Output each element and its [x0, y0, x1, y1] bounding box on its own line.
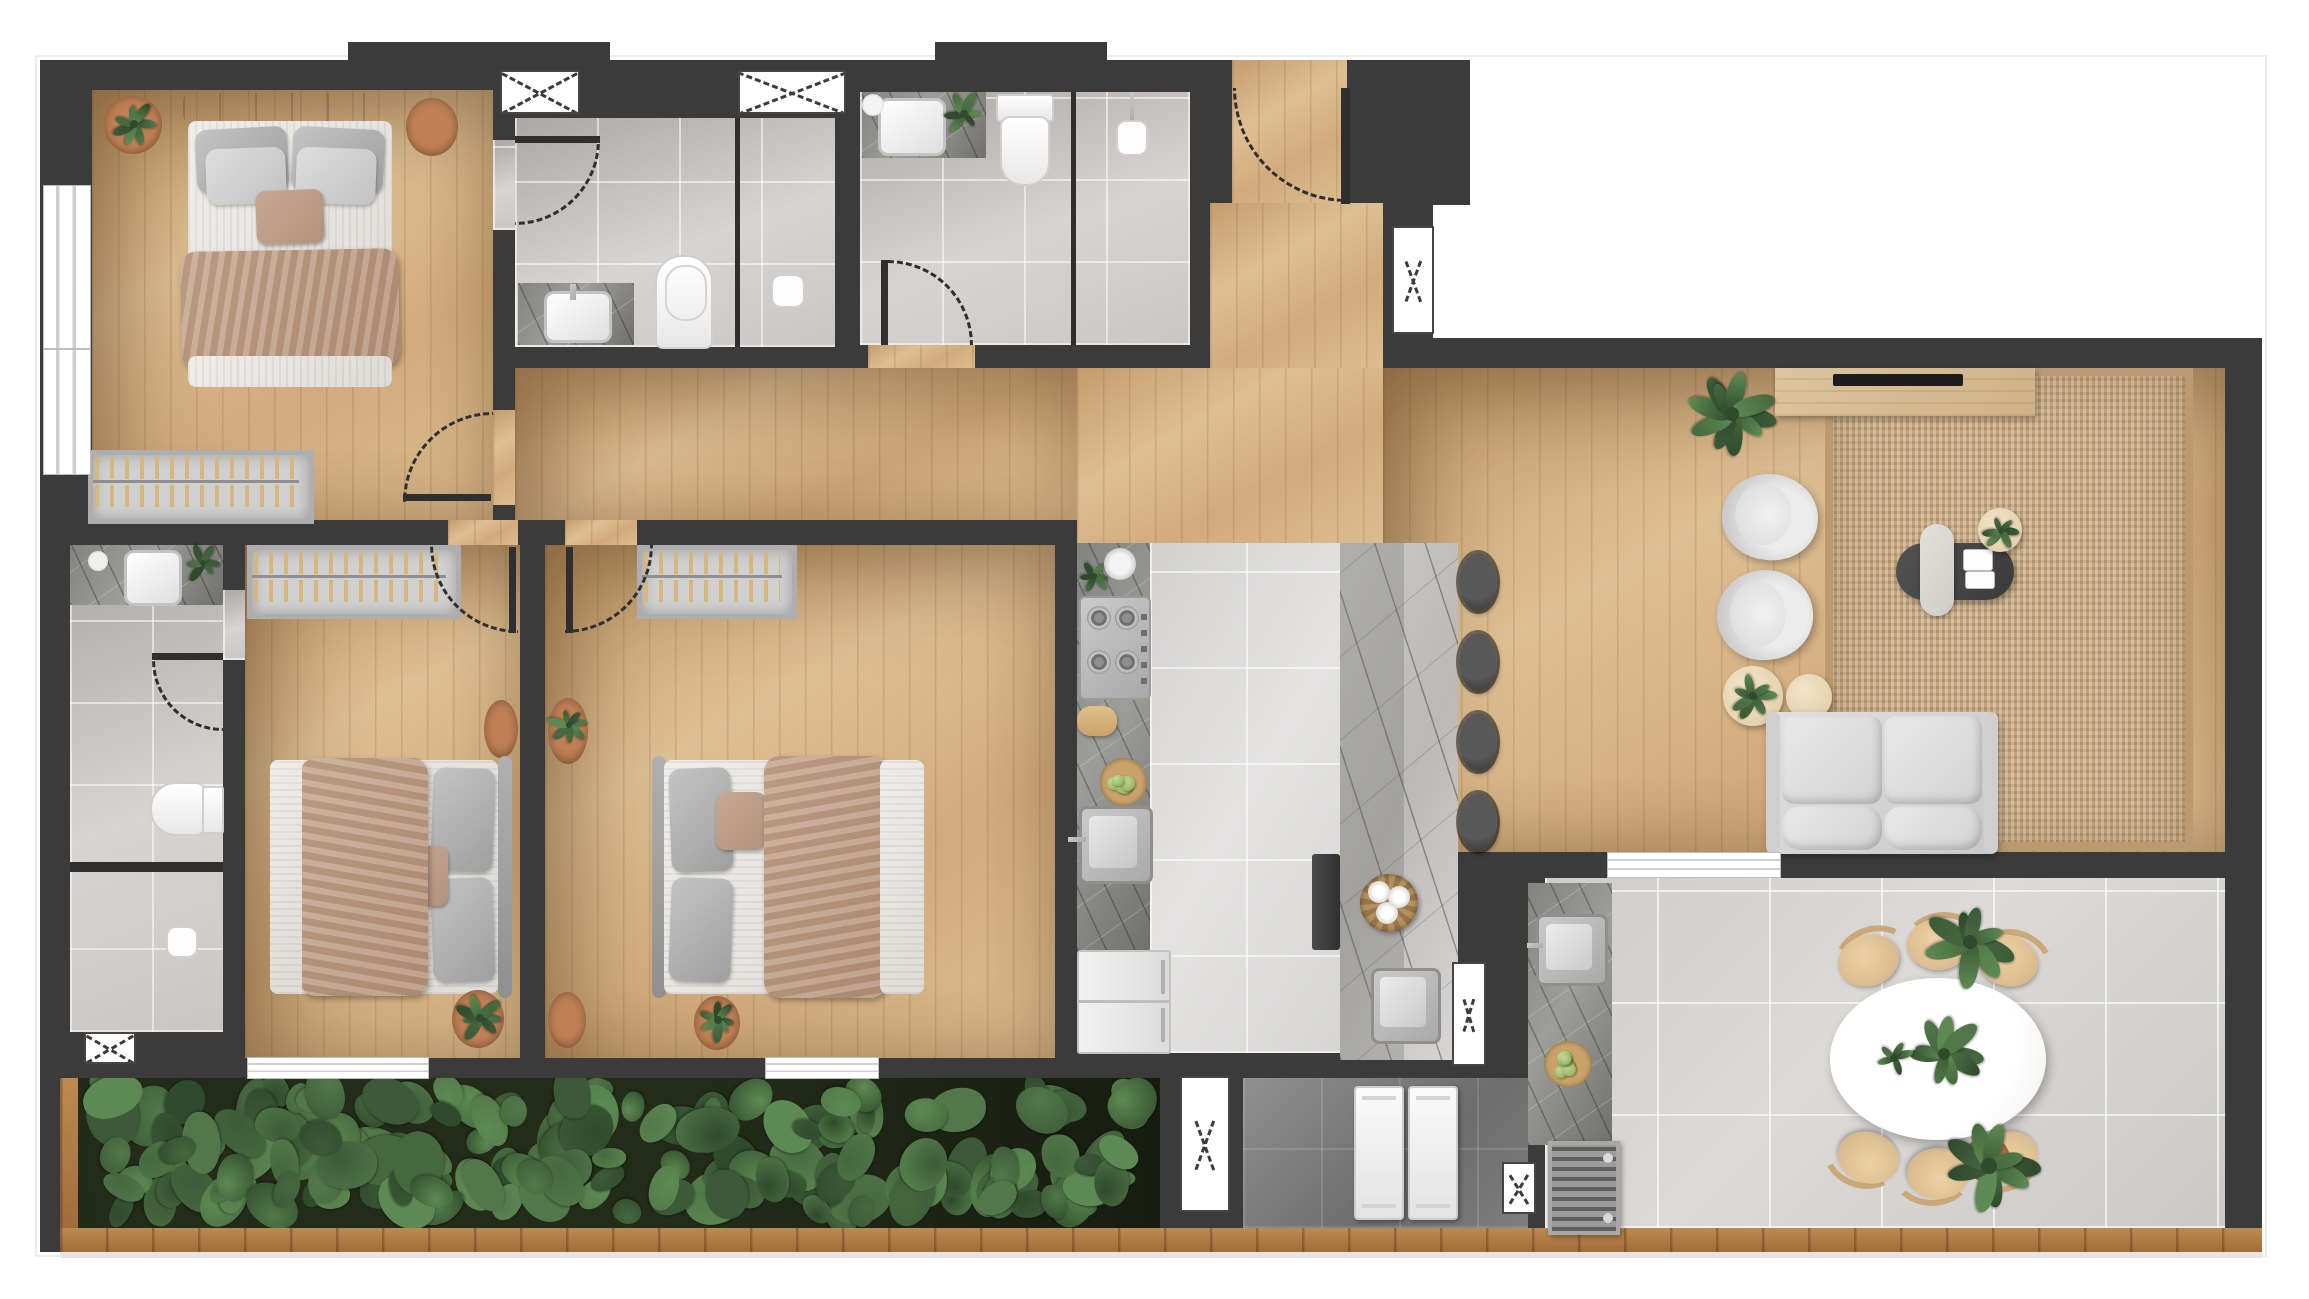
- fridge-handle: [1161, 1008, 1165, 1042]
- door-leaf-entry: [1341, 88, 1350, 204]
- kitchen-bowl: [1104, 548, 1136, 580]
- coffee-table-tray: [1920, 524, 1954, 616]
- appliance-detail: [1416, 1204, 1450, 1208]
- bbq-sink: [1536, 914, 1608, 986]
- wardrobe-rail: [252, 575, 446, 578]
- island-built-in-appliance: [1312, 854, 1340, 950]
- master-headboard: [183, 93, 397, 123]
- deck-strip-bottom: [60, 1228, 2262, 1252]
- door-arc-master: [403, 412, 493, 502]
- plant-bedroom3-south: [698, 1000, 738, 1040]
- exterior-cutout-entry-step: [1433, 205, 1470, 338]
- bath3-toilet-tank: [202, 786, 224, 834]
- window-entry-side: [1392, 226, 1434, 334]
- doorway-bathroom-3: [223, 590, 245, 660]
- kitchen-fridge-freezer: [1077, 950, 1171, 1054]
- plant-center: [1981, 1158, 1996, 1173]
- coffee-table-books: [1966, 572, 1994, 588]
- bath3-toilet-bowl: [150, 782, 206, 836]
- plant-center: [1749, 692, 1757, 700]
- bar-stool: [1459, 633, 1497, 691]
- wall-top-step-left: [348, 42, 610, 64]
- planter-bed: [78, 1078, 1160, 1228]
- planter-foliage-leaf: [1100, 1078, 1160, 1134]
- sink-faucet: [1527, 943, 1543, 948]
- cooktop-burner: [1087, 650, 1111, 674]
- grill-knob: [1603, 1213, 1613, 1223]
- door-arc-ensuite: [515, 140, 600, 225]
- guest-hand-shower: [1118, 122, 1146, 154]
- window-laundry-west: [1452, 962, 1486, 1066]
- plant-bedroom2-rug: [458, 996, 502, 1040]
- bar-stool: [1459, 713, 1497, 771]
- door-arc-entry: [1233, 88, 1347, 202]
- door-leaf-ensuite: [515, 136, 600, 143]
- sofa: [1766, 712, 1998, 854]
- window-top-guest-bath: [738, 70, 846, 114]
- window-kitchen-bay: [1180, 1076, 1230, 1212]
- window-master-left-2: [44, 350, 90, 474]
- bar-stool: [1459, 553, 1497, 611]
- cooktop-burner: [1115, 650, 1139, 674]
- plant-bedroom3-door-rug: [550, 706, 588, 744]
- bedroom3-wardrobe: [637, 545, 797, 619]
- bedroom3-pillow: [668, 877, 734, 983]
- door-leaf-bath3: [152, 653, 223, 660]
- guest-toilet-bowl: [1000, 116, 1050, 186]
- bath3-tray: [88, 551, 108, 571]
- deck-outline: [60, 1252, 2262, 1258]
- master-accent-pillow: [255, 189, 325, 245]
- wall-top-step-right: [935, 42, 1107, 64]
- plant-center: [1890, 1054, 1897, 1061]
- door-leaf-bedroom3: [566, 547, 573, 633]
- laundry-washer: [1354, 1086, 1404, 1220]
- floor-hallway: [515, 368, 1077, 520]
- kitchen-gas-cooktop: [1079, 596, 1151, 700]
- bedroom2-wardrobe: [247, 545, 461, 619]
- bedroom3-throw-blanket: [764, 756, 886, 998]
- tv: [1833, 374, 1963, 386]
- kitchen-paper-towel: [1077, 706, 1117, 736]
- wardrobe-hangers: [644, 552, 780, 574]
- master-blanket-fold: [188, 356, 392, 386]
- grill-knob: [1603, 1153, 1613, 1163]
- island-towel-basket: [1360, 874, 1418, 932]
- sofa-armrest: [1766, 712, 1780, 854]
- wardrobe-hangers: [644, 580, 780, 602]
- wardrobe-hangers: [95, 485, 297, 507]
- cooktop-burner: [1115, 606, 1139, 630]
- plant-center: [130, 120, 138, 128]
- guest-round-mirror: [862, 94, 884, 116]
- door-arc-bedroom3: [565, 545, 653, 633]
- laundry-dryer: [1408, 1086, 1458, 1220]
- wardrobe-rail: [642, 575, 782, 578]
- doorway-master: [493, 410, 515, 505]
- plant-center: [960, 110, 967, 117]
- guest-basin: [878, 98, 946, 156]
- door-leaf-guest-bath: [881, 260, 888, 345]
- fridge-handle: [1161, 960, 1165, 994]
- bedroom3-blanket-fold: [880, 760, 924, 994]
- coffee-table-books: [1964, 550, 1992, 570]
- plant-coffee-table: [1984, 514, 2018, 548]
- rolled-towel: [1376, 902, 1398, 924]
- bedroom2-blanket-fold: [270, 760, 302, 994]
- sink-bowl: [1380, 977, 1426, 1027]
- round-rug-master-right: [406, 98, 458, 156]
- sofa-armrest: [1984, 712, 1998, 854]
- sink-bowl: [1089, 816, 1137, 868]
- floor-kitchen: [1150, 543, 1340, 1053]
- planter-frame-left: [60, 1078, 78, 1228]
- toilet-seat-line: [665, 265, 707, 321]
- window-master-left-1: [44, 186, 90, 348]
- window-laundry-small: [1502, 1162, 1536, 1214]
- bedroom3-accent-pillow: [716, 792, 766, 850]
- plant-center: [1091, 573, 1097, 579]
- bath3-shower-partition: [70, 862, 223, 872]
- rolled-towel: [1368, 881, 1390, 903]
- sofa-seat-cushion: [1884, 716, 1982, 804]
- plant-dining-table: [1908, 1018, 1980, 1090]
- sliding-door-living-terrace: [1608, 853, 1780, 877]
- doorway-bedroom-3: [565, 520, 637, 545]
- plant-bath3: [184, 544, 222, 582]
- plant-terrace-southeast: [1946, 1108, 2032, 1224]
- ensuite-basin: [544, 291, 612, 343]
- plant-side-table: [1731, 674, 1775, 718]
- sink-bowl: [1546, 924, 1592, 970]
- fridge-divider: [1079, 1000, 1169, 1003]
- bbq-fruit-bowl: [1544, 1041, 1592, 1087]
- bedroom2-throw-blanket: [300, 758, 428, 996]
- appliance-detail: [1362, 1204, 1396, 1208]
- fruit: [1560, 1054, 1571, 1065]
- exterior-cutout-top-right: [1470, 58, 2264, 338]
- floor-hallway-kitchen-side: [1077, 368, 1383, 543]
- plant-dining-table-small: [1874, 1038, 1914, 1078]
- island-sink: [1371, 968, 1441, 1044]
- window-bath3-south: [84, 1032, 136, 1064]
- ensuite-toilet: [655, 255, 713, 349]
- kitchen-fruit-bowl: [1100, 758, 1147, 806]
- wardrobe-hangers: [95, 457, 297, 479]
- bedroom2-headboard: [498, 756, 512, 998]
- planter-foliage-leaf: [608, 1193, 646, 1228]
- window-bedroom2-south: [248, 1058, 428, 1078]
- cooktop-burner: [1087, 606, 1111, 630]
- window-bedroom3-south: [766, 1058, 878, 1078]
- master-wardrobe: [88, 450, 314, 524]
- sink-faucet: [1068, 837, 1086, 842]
- planter-foliage-leaf: [1008, 1078, 1077, 1144]
- plant-guest-bath: [944, 94, 984, 134]
- ensuite-faucet: [570, 284, 576, 300]
- kitchen-sink: [1079, 806, 1153, 884]
- sofa-back-cushion: [1782, 806, 1882, 850]
- floor-entry-corridor: [1210, 203, 1383, 368]
- door-arc-guest-bath: [888, 260, 973, 345]
- bedroom3-corner-rug: [548, 992, 586, 1048]
- floor-plan: [0, 0, 2309, 1299]
- guest-shower-pipe: [1130, 92, 1134, 124]
- cooktop-knobs: [1141, 608, 1147, 684]
- doorway-ensuite: [493, 140, 515, 230]
- planter-foliage-leaf: [1042, 1134, 1080, 1177]
- bath3-basin: [124, 550, 182, 606]
- ensuite-shower-partition: [735, 118, 740, 347]
- plant-terrace-northeast: [1930, 893, 2010, 991]
- window-top-ensuite: [500, 70, 580, 114]
- door-arc-bath3: [152, 660, 223, 731]
- door-arc-bedroom2: [430, 545, 518, 633]
- guest-shower-partition: [1071, 92, 1076, 345]
- grill-vent-unit: [1548, 1141, 1620, 1235]
- plant-center: [476, 1014, 484, 1022]
- fruit: [1112, 775, 1123, 786]
- plant-center: [714, 1016, 721, 1023]
- appliance-detail: [1416, 1096, 1450, 1100]
- bath3-shower-head: [168, 928, 196, 956]
- sofa-back-cushion: [1884, 806, 1982, 850]
- door-leaf-master: [403, 494, 491, 501]
- door-leaf-bedroom2: [509, 547, 516, 633]
- wardrobe-hangers: [254, 580, 444, 602]
- ensuite-shower-head: [773, 276, 803, 306]
- bedroom2-door-rug: [484, 700, 518, 758]
- sofa-seat-cushion: [1782, 716, 1882, 804]
- wardrobe-hangers: [254, 552, 444, 574]
- bar-stool: [1459, 793, 1497, 851]
- master-throw-blanket: [180, 248, 400, 370]
- wardrobe-rail: [93, 480, 299, 483]
- plant-master-rug: [112, 102, 156, 146]
- doorway-bedroom-2: [448, 520, 518, 545]
- appliance-detail: [1362, 1096, 1396, 1100]
- plant-living-large: [1692, 366, 1772, 462]
- doorway-guest-bath: [868, 345, 975, 368]
